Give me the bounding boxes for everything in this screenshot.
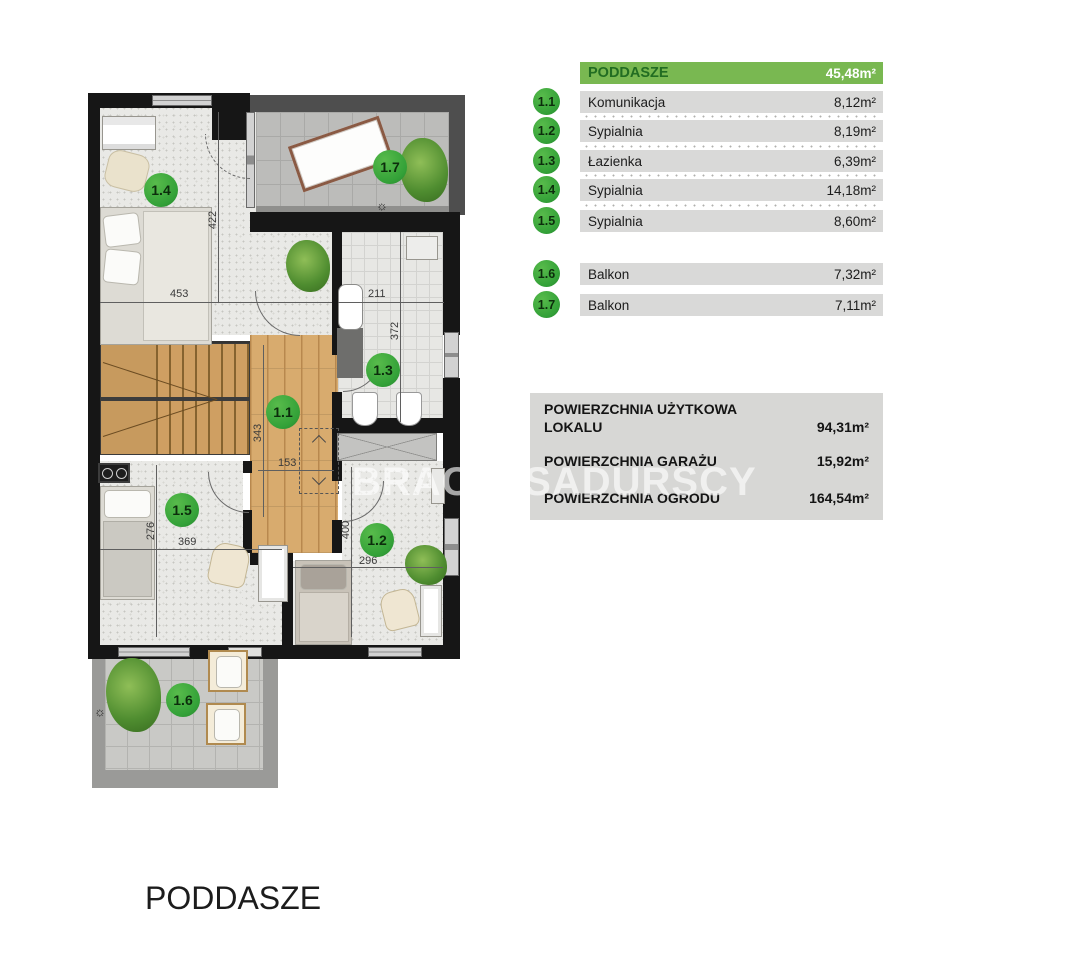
- wall-below-balcony: [250, 212, 444, 232]
- summary-label-line2: LOKALU: [544, 419, 602, 435]
- wardrobe-hatch: [337, 433, 437, 461]
- window-bottom-room12: [368, 647, 422, 657]
- legend-badge-1-5: 1.5: [533, 207, 560, 234]
- dim-label-453: 453: [170, 288, 188, 300]
- wall-right-lower: [443, 378, 460, 647]
- legend-room-name: Sypialnia: [588, 214, 643, 229]
- dim-line-211: [338, 302, 444, 303]
- legend-badge-1-7: 1.7: [533, 291, 560, 318]
- legend-room-area: 8,60m²: [834, 214, 876, 229]
- bed-1-2: [295, 560, 352, 645]
- legend-room-area: 7,32m²: [834, 267, 876, 282]
- floor-title: PODDASZE: [145, 880, 321, 917]
- wall-hall-room15-lower: [243, 510, 252, 553]
- staircase: [100, 343, 250, 455]
- legend-room-name: Sypialnia: [588, 183, 643, 198]
- window-top: [152, 95, 212, 106]
- dim-line-422: [218, 112, 219, 302]
- dim-line-296: [293, 567, 443, 568]
- toilet: [352, 392, 378, 426]
- watermark: BRACIA SADURSCY: [352, 460, 757, 505]
- room-marker-1-1: 1.1: [266, 395, 300, 429]
- legend-room-name: Komunikacja: [588, 95, 665, 110]
- legend-badge-1-3: 1.3: [533, 147, 560, 174]
- legend-badge-1-4: 1.4: [533, 176, 560, 203]
- legend-room-name: Balkon: [588, 267, 629, 282]
- dim-label-153: 153: [278, 457, 296, 469]
- legend-badge-1-6: 1.6: [533, 260, 560, 287]
- legend-header-area: 45,48m²: [826, 66, 876, 81]
- sun-icon: ☼: [376, 198, 388, 213]
- duvet: [299, 592, 349, 642]
- page: ☼ ☼: [0, 0, 1065, 973]
- legend-room-name: Balkon: [588, 298, 629, 313]
- plant-hall: [286, 240, 330, 292]
- stair-landing-line: [101, 397, 249, 401]
- stair-run-lower: [156, 401, 249, 454]
- pillow: [104, 490, 151, 518]
- roof-band-top: [250, 95, 465, 112]
- dim-line-153: [258, 470, 334, 471]
- stair-run-upper: [156, 344, 249, 397]
- dim-line-369: [100, 549, 282, 550]
- wall-right-upper: [443, 212, 460, 335]
- dim-label-343: 343: [252, 424, 264, 442]
- window-right-bath: [444, 332, 459, 378]
- bed-1-5: [100, 486, 155, 600]
- bathtub: [338, 284, 363, 330]
- legend-room-area: 7,11m²: [835, 298, 876, 313]
- room-marker-1-7: 1.7: [373, 150, 407, 184]
- legend-row: Sypialnia 14,18m²: [580, 179, 883, 201]
- dim-line-276: [156, 465, 157, 637]
- window-bottom-room15: [118, 647, 190, 657]
- roof-band-right: [449, 95, 465, 215]
- legend-header: PODDASZE 45,48m²: [580, 62, 883, 84]
- deck-chair-1: [208, 650, 248, 692]
- bed-1-4: [100, 207, 212, 345]
- legend-room-area: 8,19m²: [834, 124, 876, 139]
- attic-arrow-down: [312, 471, 326, 485]
- wall-left: [88, 108, 100, 655]
- summary-value: 164,54m²: [809, 490, 869, 506]
- dim-label-400: 400: [340, 521, 352, 539]
- attic-arrow-up: [312, 435, 326, 449]
- legend-row: Sypialnia 8,19m²: [580, 120, 883, 142]
- legend-row: Komunikacja 8,12m²: [580, 91, 883, 113]
- cushion: [214, 709, 240, 741]
- legend-row: Balkon 7,32m²: [580, 263, 883, 285]
- attic-slope-marker: [299, 428, 339, 494]
- dim-label-276: 276: [145, 522, 157, 540]
- legend-row: Balkon 7,11m²: [580, 294, 883, 316]
- legend-badge-1-2: 1.2: [533, 117, 560, 144]
- bath-counter: [337, 328, 363, 378]
- burner: [102, 468, 113, 479]
- legend-room-area: 14,18m²: [826, 183, 876, 198]
- room-marker-1-5: 1.5: [165, 493, 199, 527]
- row-separator: [582, 204, 881, 207]
- room-marker-1-2: 1.2: [360, 523, 394, 557]
- room-marker-1-6: 1.6: [166, 683, 200, 717]
- legend-header-label: PODDASZE: [588, 65, 669, 81]
- deck-chair-2: [206, 703, 246, 745]
- legend-row: Łazienka 6,39m²: [580, 150, 883, 172]
- legend-row: Sypialnia 8,60m²: [580, 210, 883, 232]
- dim-label-422: 422: [207, 211, 219, 229]
- dim-line-453: [100, 302, 332, 303]
- legend-room-name: Sypialnia: [588, 124, 643, 139]
- legend-badge-1-1: 1.1: [533, 88, 560, 115]
- plant-1-2: [405, 545, 447, 585]
- row-separator: [582, 115, 881, 118]
- desk-1-5: [258, 545, 288, 602]
- dresser-1-4: [102, 116, 156, 150]
- duvet: [143, 211, 209, 341]
- row-separator: [582, 174, 881, 177]
- summary-label-line1: POWIERZCHNIA UŻYTKOWA: [544, 401, 737, 417]
- summary-value: 94,31m²: [817, 419, 869, 435]
- legend-room-name: Łazienka: [588, 154, 642, 169]
- room-marker-1-3: 1.3: [366, 353, 400, 387]
- legend-room-area: 8,12m²: [834, 95, 876, 110]
- legend-room-area: 6,39m²: [834, 154, 876, 169]
- desk-1-2: [420, 585, 442, 637]
- dim-label-211: 211: [368, 288, 386, 300]
- summary-value: 15,92m²: [817, 453, 869, 469]
- bath-cabinet: [406, 236, 438, 260]
- row-separator: [582, 145, 881, 148]
- burner: [116, 468, 127, 479]
- cushion: [216, 656, 242, 688]
- dim-label-372: 372: [389, 322, 401, 340]
- appliance-icons: [98, 463, 130, 483]
- room-marker-1-4: 1.4: [144, 173, 178, 207]
- dim-label-369: 369: [178, 536, 196, 548]
- sun-icon: ☼: [94, 704, 106, 719]
- pillow: [102, 248, 141, 286]
- pillow: [102, 212, 142, 248]
